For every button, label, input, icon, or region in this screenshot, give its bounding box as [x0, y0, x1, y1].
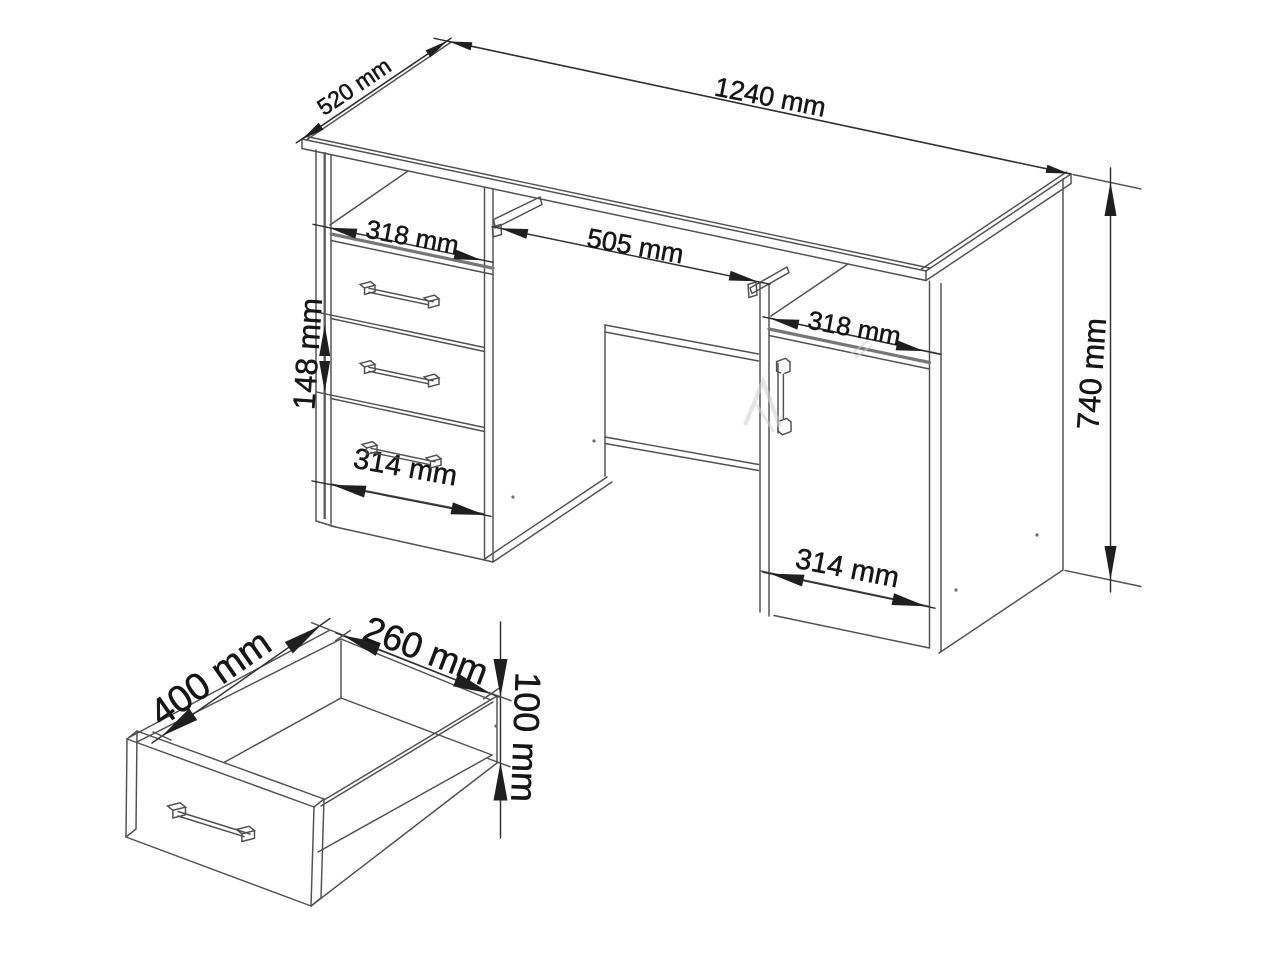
svg-text:100 mm: 100 mm [503, 671, 549, 802]
